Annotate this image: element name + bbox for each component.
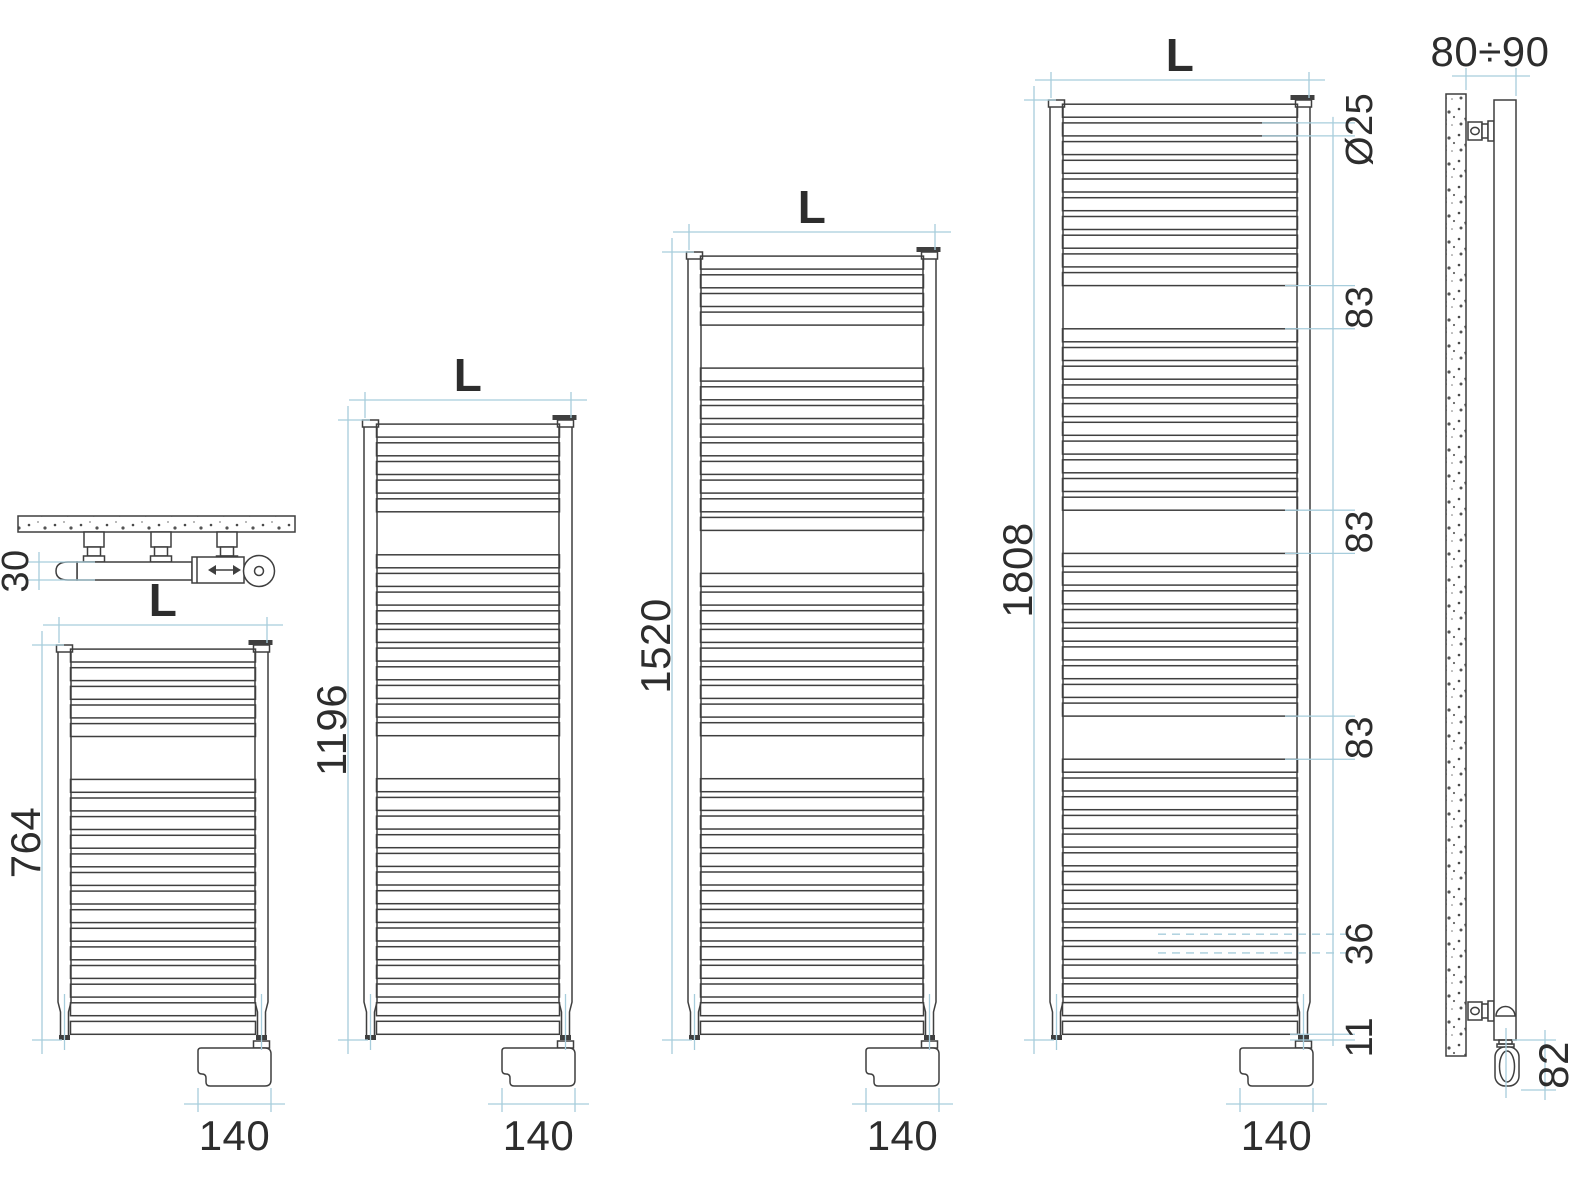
element-width-dim-label: 140 [867, 1112, 939, 1159]
width-dimension: L [1035, 29, 1325, 98]
heating-tube [377, 928, 560, 941]
heating-tube [1063, 385, 1298, 398]
collector-tube-side-view [1494, 100, 1516, 1040]
valve-knob [244, 556, 275, 587]
heating-tube [377, 480, 560, 493]
width-dimension: L [43, 574, 283, 643]
heating-tube [377, 424, 560, 437]
heating-tube [1063, 1003, 1298, 1016]
collector-body [58, 652, 71, 1035]
collector-top-cap [1291, 95, 1315, 100]
heating-tube [1063, 666, 1298, 679]
heating-tube [1063, 366, 1298, 379]
heating-tube [701, 406, 924, 419]
heating-tube [377, 499, 560, 512]
heating-tube [377, 704, 560, 717]
heating-tube [1063, 1021, 1298, 1034]
heating-tube [701, 424, 924, 437]
heating-element-box [198, 1048, 271, 1086]
heating-tube [701, 947, 924, 960]
heating-tube [377, 573, 560, 586]
heating-tube [377, 797, 560, 810]
heating-tube [1063, 198, 1298, 211]
heating-tube [701, 704, 924, 717]
heating-tube [701, 517, 924, 530]
heating-tube [701, 1021, 924, 1034]
height-dim-label: 1808 [994, 522, 1041, 617]
bracket-flange [1488, 121, 1494, 141]
heating-tube [1063, 479, 1298, 492]
heating-tube [1063, 273, 1298, 286]
heating-tube [377, 779, 560, 792]
height-dimension: 764 [2, 631, 64, 1054]
heating-tube [1063, 572, 1298, 585]
mounting-bracket [84, 532, 105, 562]
heating-tube [1063, 778, 1298, 791]
collector-top-cap [917, 247, 941, 252]
heating-tube [377, 984, 560, 997]
height-dimension: 1808 [994, 86, 1056, 1054]
heating-tube [1063, 553, 1298, 566]
collector-body [1050, 107, 1063, 1035]
heating-tube [1063, 872, 1298, 885]
heating-tube [377, 816, 560, 829]
collector-top-cap [249, 640, 273, 645]
heating-tube [701, 853, 924, 866]
heating-tube [701, 368, 924, 381]
mounting-bracket [1468, 1001, 1494, 1021]
radiator-dimension-drawing: L764140L1196140L1520140L1808140Ø25838383… [0, 0, 1575, 1182]
heating-tube [71, 966, 256, 979]
heating-tube [71, 854, 256, 867]
heating-tube [1063, 254, 1298, 267]
heating-tube [1063, 890, 1298, 903]
height-dim-label: 764 [2, 807, 49, 879]
heating-tube [1063, 217, 1298, 230]
tube-diameter-dimension-label: Ø25 [1339, 93, 1381, 166]
heating-tube [1063, 460, 1298, 473]
wall-section [18, 516, 295, 532]
heating-tube [1063, 853, 1298, 866]
heating-tube [377, 629, 560, 642]
heating-tube [701, 928, 924, 941]
bracket-block [217, 532, 237, 547]
heating-tube [71, 984, 256, 997]
heating-tube [1063, 815, 1298, 828]
heating-tube [1063, 404, 1298, 417]
width-dimension: L [349, 349, 587, 418]
heating-element-box [502, 1048, 575, 1086]
heating-tube [701, 685, 924, 698]
heating-tube [701, 984, 924, 997]
height-dimension: 1196 [308, 406, 370, 1054]
heating-tube [71, 891, 256, 904]
group-gap-dimension-label: 83 [1339, 510, 1381, 553]
radiator-1808-front-view: L1808140 [994, 29, 1327, 1159]
heating-tube [701, 461, 924, 474]
element-width-dimension: 140 [852, 1088, 953, 1159]
collector-body [688, 259, 701, 1035]
radiator-1196-front-view: L1196140 [308, 349, 589, 1159]
heating-tube [71, 779, 256, 792]
detail-dimensions: Ø258383833611 [1158, 93, 1381, 1058]
mounting-bracket [1468, 121, 1494, 141]
heating-tube [701, 592, 924, 605]
heating-tube [377, 947, 560, 960]
heating-tube [701, 965, 924, 978]
heating-tube [701, 872, 924, 885]
heating-tube [701, 797, 924, 810]
heating-tube [701, 629, 924, 642]
element-height-dimension: 82 [1512, 1030, 1575, 1100]
collector-body [559, 427, 572, 1035]
element-capsule [1495, 1047, 1519, 1086]
width-dim-label: L [798, 181, 827, 233]
collector-body [364, 427, 377, 1035]
heating-tube [377, 909, 560, 922]
heating-tube [71, 928, 256, 941]
heating-tube [1063, 142, 1298, 155]
height-dim-label: 1196 [308, 684, 355, 776]
heating-tube [377, 965, 560, 978]
heating-tube [71, 873, 256, 886]
heating-tube [701, 835, 924, 848]
wall-section [1446, 94, 1466, 1056]
heating-tube [1063, 909, 1298, 922]
heating-tube [1063, 965, 1298, 978]
side-view: 80÷9082 [1431, 28, 1575, 1100]
bracket-block [151, 532, 171, 547]
heating-tube [1063, 348, 1298, 361]
heating-tube [377, 667, 560, 680]
heating-tube [377, 723, 560, 736]
collector-body [1297, 107, 1310, 1035]
heating-tube [1063, 422, 1298, 435]
heating-tube [377, 555, 560, 568]
heating-tube [701, 723, 924, 736]
heating-tube [71, 910, 256, 923]
heating-tube [377, 853, 560, 866]
element-width-dimension: 140 [1226, 1088, 1327, 1159]
heating-tube [701, 294, 924, 307]
heating-tube [701, 499, 924, 512]
heating-tube [1063, 797, 1298, 810]
heating-tube [377, 872, 560, 885]
heating-tube [701, 891, 924, 904]
width-dim-label: L [454, 349, 483, 401]
heating-tube [1063, 684, 1298, 697]
height-dimension: 1520 [632, 238, 694, 1054]
heating-tube [701, 816, 924, 829]
heating-tube [1063, 591, 1298, 604]
heating-tube [701, 611, 924, 624]
heating-tube [71, 668, 256, 681]
heating-tube [701, 1003, 924, 1016]
bracket-flange [1488, 1001, 1494, 1021]
heating-tube [377, 685, 560, 698]
heating-tube [1063, 984, 1298, 997]
collector-top-cap [553, 415, 577, 420]
heating-tube [377, 835, 560, 848]
bracket-stem [221, 547, 234, 556]
radiator-technical-drawing-page: L764140L1196140L1520140L1808140Ø25838383… [0, 0, 1575, 1182]
bracket-flange [84, 556, 105, 562]
width-dimension: L [673, 181, 951, 250]
heating-tube [701, 779, 924, 792]
element-width-dimension: 140 [488, 1088, 589, 1159]
bracket-flange [151, 556, 172, 562]
heating-tube [701, 443, 924, 456]
heating-tube [701, 909, 924, 922]
heating-tube [71, 705, 256, 718]
heating-tube [71, 686, 256, 699]
radiator-764-front-view: L764140 [2, 574, 285, 1159]
heating-tube [701, 648, 924, 661]
heating-element-box [1240, 1048, 1313, 1086]
radiator-1520-front-view: L1520140 [632, 181, 953, 1159]
heating-tube [701, 256, 924, 269]
heating-tube [1063, 123, 1298, 136]
heating-tube [1063, 703, 1298, 716]
heating-tube [377, 592, 560, 605]
collector-body [255, 652, 268, 1035]
heating-tube [377, 648, 560, 661]
heating-tube [1063, 235, 1298, 248]
heating-tube [1063, 179, 1298, 192]
heating-tube [1063, 628, 1298, 641]
heating-tube [1063, 104, 1298, 117]
top-view: 30 [0, 516, 295, 593]
group-gap-dimension-label: 83 [1339, 716, 1381, 759]
collector-body [923, 259, 936, 1035]
heating-tube [377, 1003, 560, 1016]
heating-tube [377, 891, 560, 904]
group-gap-dimension-label: 83 [1339, 286, 1381, 329]
wall-distance-dim-label: 80÷90 [1431, 28, 1550, 75]
heating-tube [377, 443, 560, 456]
bracket-stem [155, 547, 168, 556]
heating-tube [71, 947, 256, 960]
tube-end-cap [56, 562, 77, 580]
element-width-dim-label: 140 [199, 1112, 271, 1159]
heating-tube [1063, 834, 1298, 847]
heating-tube [1063, 329, 1298, 342]
heating-tube [701, 667, 924, 680]
mounting-bracket [151, 532, 172, 562]
bracket-stem [88, 547, 101, 556]
heating-tube [377, 611, 560, 624]
heating-tube [71, 649, 256, 662]
heating-element-box [866, 1048, 939, 1086]
heating-tube [1063, 441, 1298, 454]
bracket-stem [1482, 124, 1488, 138]
bracket-stem [1482, 1004, 1488, 1018]
bracket-block [84, 532, 104, 547]
heating-tube [377, 1021, 560, 1034]
heating-tube [1063, 497, 1298, 510]
heating-tube [1063, 759, 1298, 772]
heating-tube [71, 817, 256, 830]
heating-tube [71, 1021, 256, 1034]
element-width-dim-label: 140 [503, 1112, 575, 1159]
heating-tube [377, 462, 560, 475]
heating-tube [1063, 610, 1298, 623]
element-height-dim-label: 82 [1530, 1041, 1575, 1089]
wall-distance-dimension: 80÷90 [1431, 28, 1550, 96]
height-dim-label: 1520 [632, 598, 679, 693]
heating-tube [701, 573, 924, 586]
width-dim-label: L [149, 574, 178, 626]
heating-tube [71, 798, 256, 811]
heating-tube [701, 480, 924, 493]
depth-dim-label: 30 [0, 549, 37, 592]
heating-tube [701, 275, 924, 288]
tube-pitch-dimension-label: 36 [1339, 922, 1381, 965]
heating-tube [1063, 647, 1298, 660]
heating-tube [701, 312, 924, 325]
collector-tube-top-view [77, 562, 192, 580]
heating-tube [71, 835, 256, 848]
width-dim-label: L [1166, 29, 1195, 81]
heating-tube [71, 724, 256, 737]
element-width-dim-label: 140 [1241, 1112, 1313, 1159]
generated-drawing: L764140L1196140L1520140L1808140Ø25838383… [0, 28, 1575, 1159]
bottom-offset-dimension-label: 11 [1339, 1017, 1381, 1057]
element-width-dimension: 140 [184, 1088, 285, 1159]
heating-tube [71, 1003, 256, 1016]
heating-tube [701, 387, 924, 400]
heating-tube [1063, 160, 1298, 173]
